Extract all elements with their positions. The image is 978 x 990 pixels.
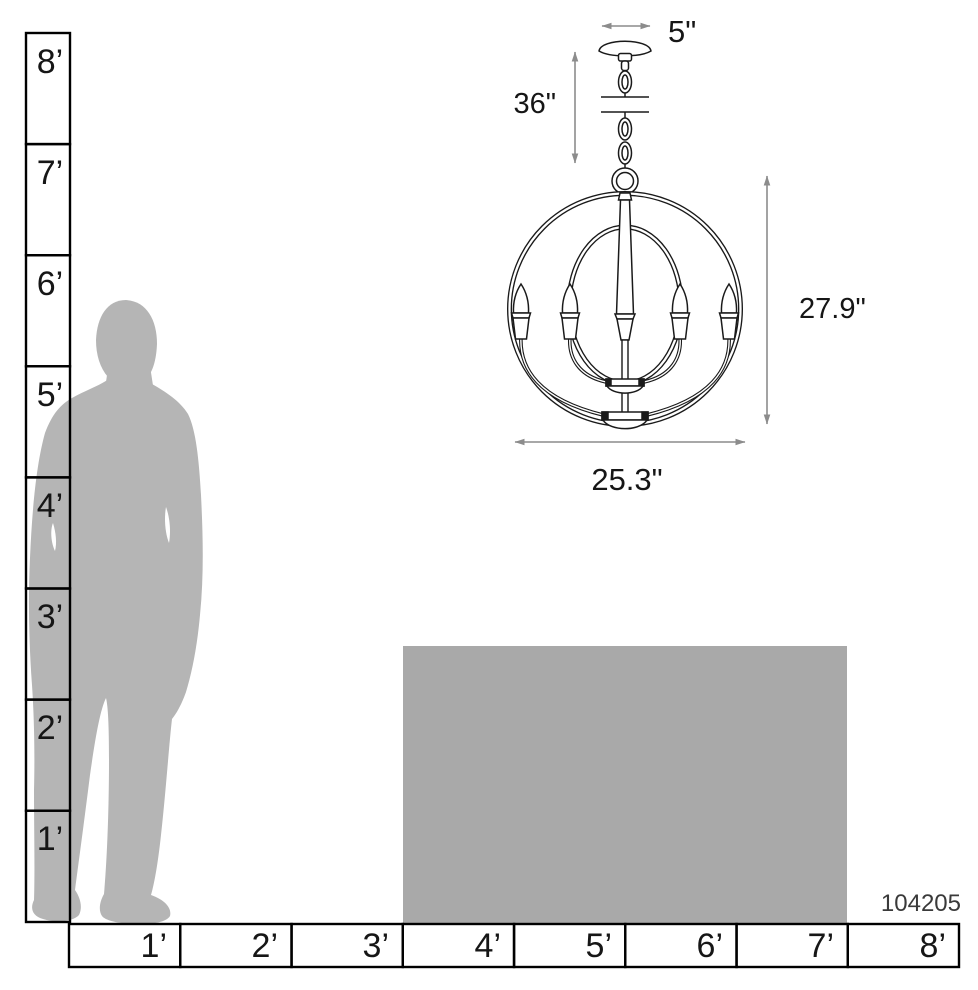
vertical-ruler-label: 2’ (37, 709, 63, 747)
horizontal-ruler-label: 6’ (697, 927, 723, 965)
horizontal-ruler-label: 1’ (141, 927, 167, 965)
outer-plate-cap (602, 412, 608, 420)
candle-flame (721, 284, 736, 313)
horizontal-ruler-label: 4’ (475, 927, 501, 965)
horizontal-ruler-labels: 1’ 2’ 3’ 4’ 5’ 6’ 7’ 8’ (141, 927, 946, 965)
outer-plate-bar (602, 412, 648, 420)
vertical-ruler-label: 4’ (37, 487, 63, 525)
candle (561, 284, 580, 339)
inner-plate-dish (607, 386, 643, 393)
canopy-loop (622, 61, 629, 71)
diagram-svg: 8’ 7’ 6’ 5’ 4’ 3’ 2’ 1’ 1’ 2’ 3’ 4’ 5’ 6… (0, 0, 978, 990)
horizontal-ruler-label: 3’ (363, 927, 389, 965)
fixture-height-label: 27.9" (799, 293, 866, 325)
outer-plate-dish (603, 420, 647, 429)
dimension-labels: 5" 36" 27.9" 25.3" (513, 14, 865, 497)
candle-cup (672, 318, 688, 339)
candle-flame (513, 284, 528, 313)
dimension-diagram: 8’ 7’ 6’ 5’ 4’ 3’ 2’ 1’ 1’ 2’ 3’ 4’ 5’ 6… (0, 0, 978, 990)
inner-plate-cap (606, 379, 611, 386)
horizontal-ruler-label: 2’ (252, 927, 278, 965)
spire-body (617, 200, 634, 314)
product-number: 104205 (881, 890, 961, 917)
candle (720, 284, 739, 339)
canopy-nut (619, 54, 632, 62)
vertical-ruler-label: 3’ (37, 598, 63, 636)
center-stem (622, 340, 628, 414)
spire-cup (617, 319, 633, 340)
center-spire (615, 193, 635, 340)
vertical-ruler-label: 1’ (37, 820, 63, 858)
candle-cup (513, 318, 529, 339)
spire-cap (619, 193, 632, 200)
vertical-ruler-label: 5’ (37, 376, 63, 414)
horizontal-ruler-label: 5’ (586, 927, 612, 965)
candle (671, 284, 690, 339)
canopy-width-label: 5" (668, 14, 696, 49)
chain-length-label: 36" (513, 88, 556, 120)
outer-bottom-plate (602, 412, 648, 429)
vertical-ruler-label: 6’ (37, 265, 63, 303)
fixture-width-label: 25.3" (591, 462, 662, 497)
candle-flame (562, 284, 577, 313)
candle-cup (721, 318, 737, 339)
candle (512, 284, 531, 339)
inner-bottom-plate (606, 379, 644, 393)
horizontal-ruler-label: 8’ (920, 927, 946, 965)
vertical-ruler-label: 7’ (37, 154, 63, 192)
inner-plate-cap (639, 379, 644, 386)
table-silhouette (403, 646, 847, 924)
vertical-ruler-label: 8’ (37, 43, 63, 81)
candle-cup (562, 318, 578, 339)
outer-plate-cap (642, 412, 648, 420)
horizontal-ruler-label: 7’ (808, 927, 834, 965)
candle-flame (672, 284, 687, 313)
chain (601, 71, 649, 169)
